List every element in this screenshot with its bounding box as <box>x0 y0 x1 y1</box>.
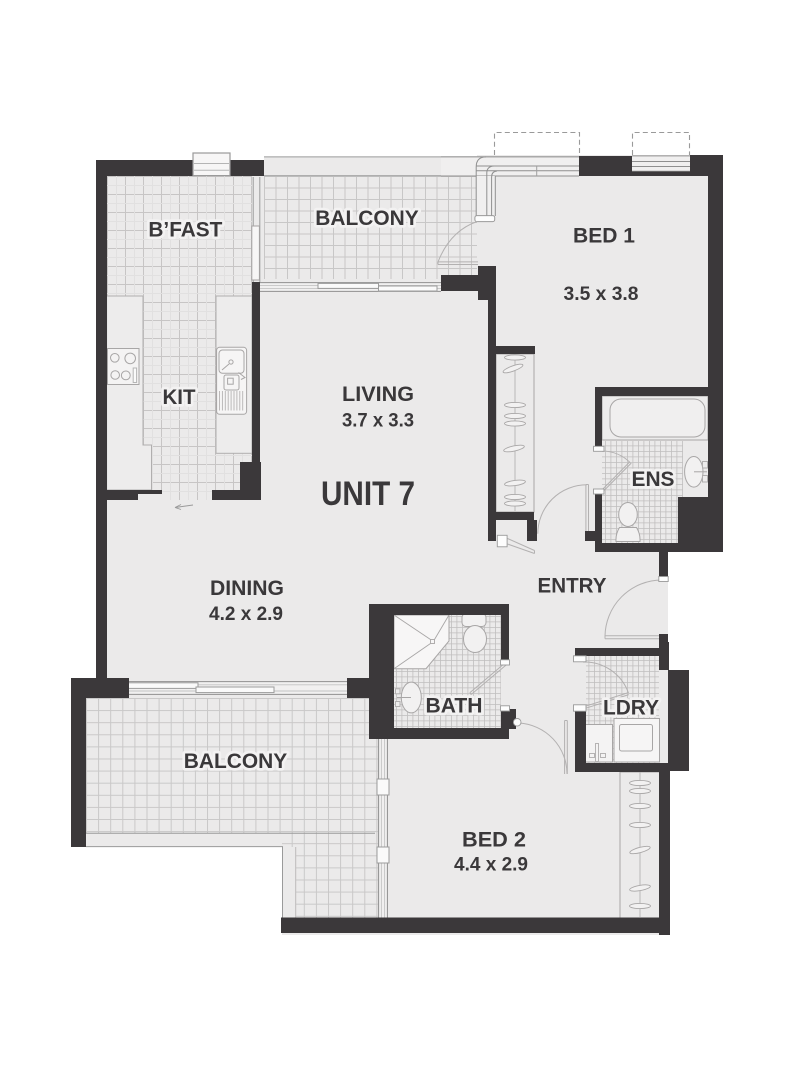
svg-text:BATH: BATH <box>426 695 483 718</box>
svg-text:4.4 x 2.9: 4.4 x 2.9 <box>454 854 528 876</box>
svg-text:ENTRY: ENTRY <box>538 575 607 598</box>
svg-text:ENS: ENS <box>632 468 675 491</box>
svg-text:BED 1: BED 1 <box>573 225 635 248</box>
svg-text:BED 2: BED 2 <box>462 829 526 852</box>
svg-text:B’FAST: B’FAST <box>148 219 222 242</box>
svg-text:KIT: KIT <box>163 386 196 409</box>
svg-text:LIVING: LIVING <box>342 383 414 406</box>
svg-text:LDRY: LDRY <box>603 697 659 720</box>
svg-text:DINING: DINING <box>210 577 284 600</box>
svg-text:BALCONY: BALCONY <box>184 750 288 773</box>
svg-text:3.5 x 3.8: 3.5 x 3.8 <box>564 283 639 305</box>
svg-text:4.2 x 2.9: 4.2 x 2.9 <box>209 603 283 625</box>
svg-text:3.7 x 3.3: 3.7 x 3.3 <box>342 410 414 432</box>
svg-text:BALCONY: BALCONY <box>315 207 419 230</box>
svg-text:UNIT 7: UNIT 7 <box>321 475 415 513</box>
